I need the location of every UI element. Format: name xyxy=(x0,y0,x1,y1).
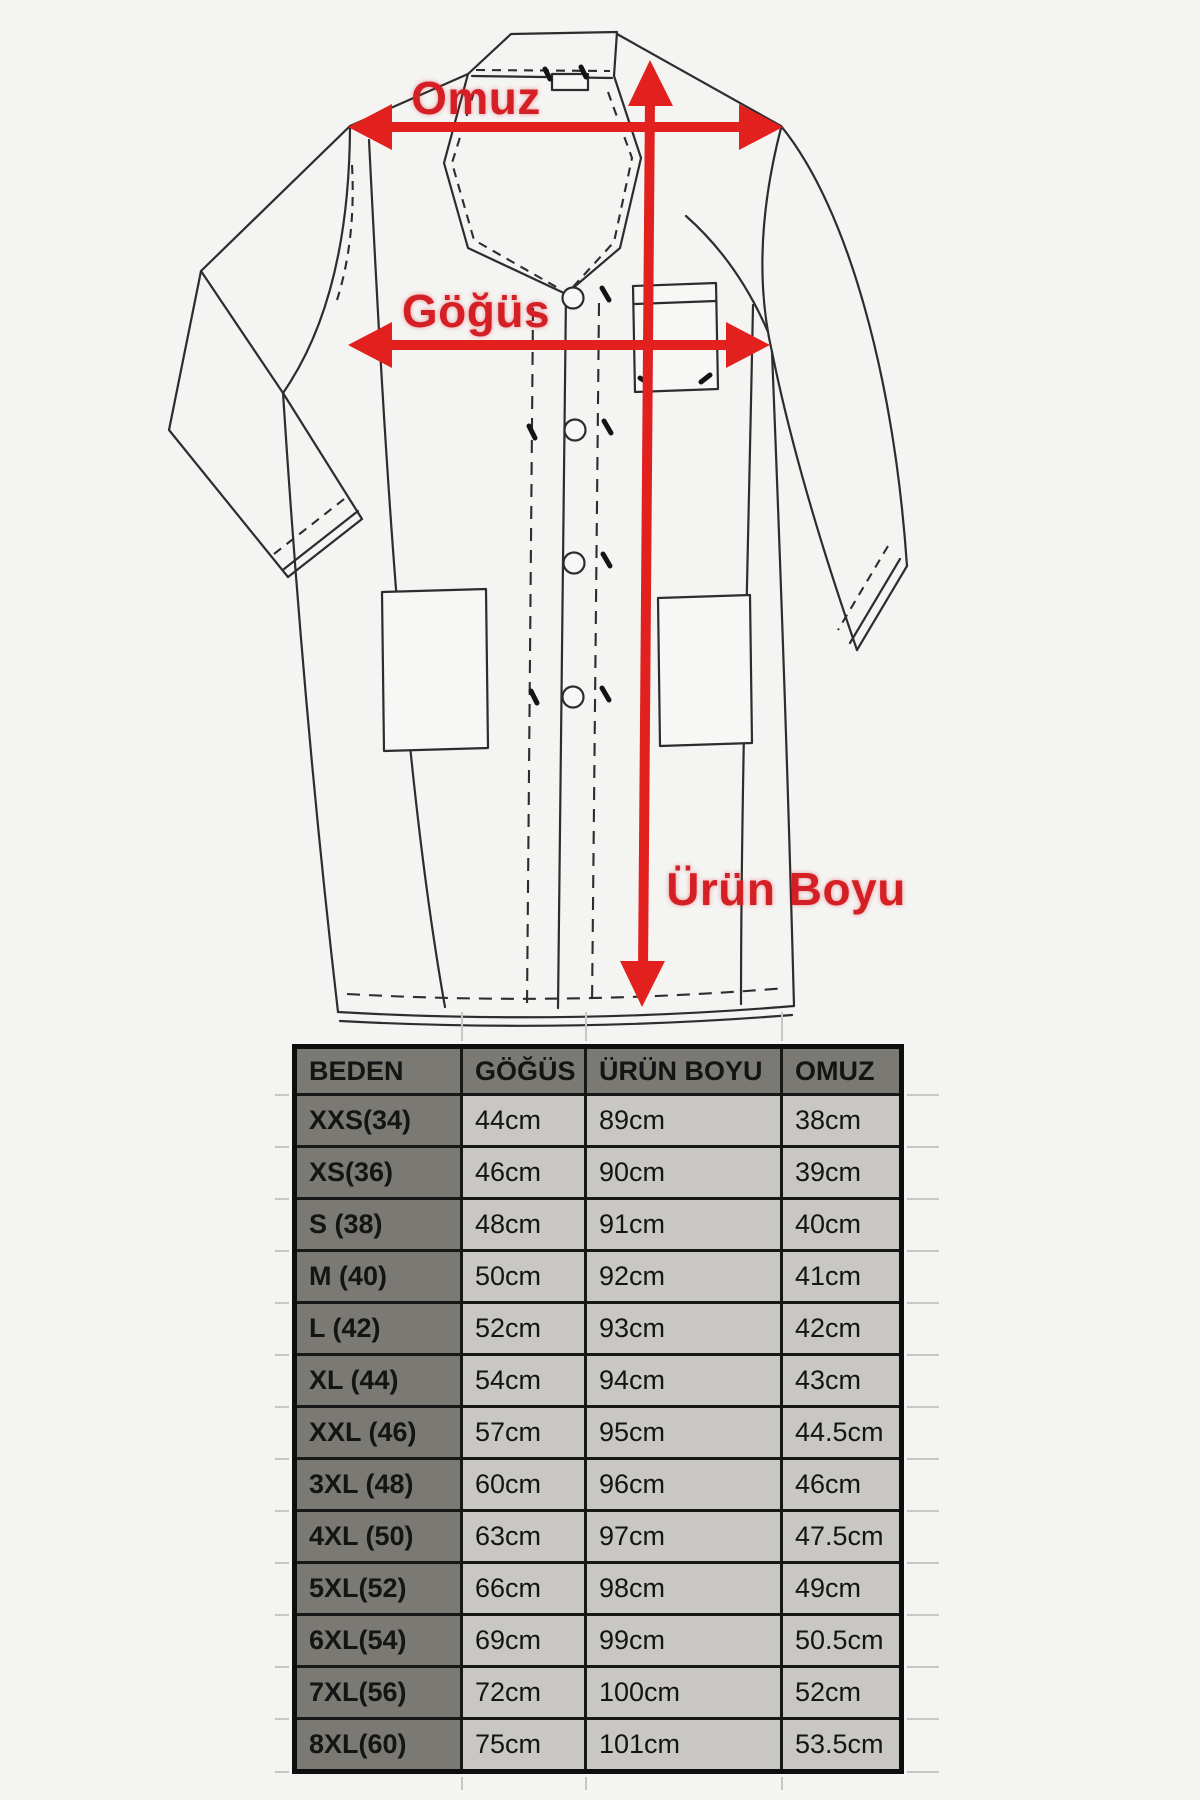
size-cell: 38cm xyxy=(782,1095,902,1147)
size-table-header-3: OMUZ xyxy=(782,1047,902,1095)
gridline-tick xyxy=(275,1510,289,1512)
gridline-tick xyxy=(907,1458,939,1460)
gridline-tick xyxy=(907,1718,939,1720)
gridline-tick xyxy=(907,1771,939,1773)
size-cell: 75cm xyxy=(462,1719,586,1772)
size-cell: 39cm xyxy=(782,1147,902,1199)
gridline-tick xyxy=(907,1562,939,1564)
size-cell: 101cm xyxy=(586,1719,782,1772)
length-arrow xyxy=(620,60,673,1007)
gridline-tick xyxy=(907,1146,939,1148)
front-placket xyxy=(527,294,599,1008)
size-cell: 72cm xyxy=(462,1667,586,1719)
size-cell: 53.5cm xyxy=(782,1719,902,1772)
gridline-tick xyxy=(907,1614,939,1616)
size-row-label: XXS(34) xyxy=(295,1095,462,1147)
gridline-tick xyxy=(907,1510,939,1512)
gridline-tick xyxy=(275,1250,289,1252)
size-row-label: M (40) xyxy=(295,1251,462,1303)
size-cell: 40cm xyxy=(782,1199,902,1251)
gridline-tick xyxy=(275,1771,289,1773)
size-cell: 50.5cm xyxy=(782,1615,902,1667)
gridline-tick xyxy=(781,1777,783,1790)
gridline-tick xyxy=(461,1777,463,1790)
size-cell: 94cm xyxy=(586,1355,782,1407)
size-row-label: 5XL(52) xyxy=(295,1563,462,1615)
size-table-row: 4XL (50)63cm97cm47.5cm xyxy=(295,1511,902,1563)
gridline-tick xyxy=(275,1094,289,1096)
size-cell: 63cm xyxy=(462,1511,586,1563)
size-cell: 50cm xyxy=(462,1251,586,1303)
size-cell: 47.5cm xyxy=(782,1511,902,1563)
size-row-label: 8XL(60) xyxy=(295,1719,462,1772)
gridline-tick xyxy=(907,1094,939,1096)
size-table-row: S (38)48cm91cm40cm xyxy=(295,1199,902,1251)
gridline-tick xyxy=(275,1718,289,1720)
size-row-label: XS(36) xyxy=(295,1147,462,1199)
shoulder-label: Omuz xyxy=(411,72,541,124)
size-cell: 66cm xyxy=(462,1563,586,1615)
gridline-tick xyxy=(275,1562,289,1564)
gridline-tick xyxy=(907,1250,939,1252)
size-cell: 97cm xyxy=(586,1511,782,1563)
size-table-row: 6XL(54)69cm99cm50.5cm xyxy=(295,1615,902,1667)
size-cell: 91cm xyxy=(586,1199,782,1251)
gridline-tick xyxy=(907,1666,939,1668)
size-row-label: XXL (46) xyxy=(295,1407,462,1459)
size-cell: 92cm xyxy=(586,1251,782,1303)
gridline-tick xyxy=(275,1146,289,1148)
size-table-row: 7XL(56)72cm100cm52cm xyxy=(295,1667,902,1719)
size-row-label: S (38) xyxy=(295,1199,462,1251)
size-cell: 57cm xyxy=(462,1407,586,1459)
size-cell: 96cm xyxy=(586,1459,782,1511)
size-cell: 95cm xyxy=(586,1407,782,1459)
size-cell: 100cm xyxy=(586,1667,782,1719)
gridline-tick xyxy=(907,1302,939,1304)
size-cell: 46cm xyxy=(782,1459,902,1511)
size-cell: 41cm xyxy=(782,1251,902,1303)
size-cell: 93cm xyxy=(586,1303,782,1355)
size-table: BEDENGÖĞÜSÜRÜN BOYUOMUZ XXS(34)44cm89cm3… xyxy=(292,1044,904,1774)
size-cell: 52cm xyxy=(782,1667,902,1719)
size-row-label: 3XL (48) xyxy=(295,1459,462,1511)
size-table-row: 8XL(60)75cm101cm53.5cm xyxy=(295,1719,902,1772)
labcoat-technical-drawing: Omuz Göğüs Ürün Boyu xyxy=(0,0,1200,1040)
size-cell: 46cm xyxy=(462,1147,586,1199)
size-table-row: L (42)52cm93cm42cm xyxy=(295,1303,902,1355)
size-table-row: XXL (46)57cm95cm44.5cm xyxy=(295,1407,902,1459)
hem-stitch xyxy=(347,988,786,999)
gridline-tick xyxy=(275,1666,289,1668)
size-cell: 48cm xyxy=(462,1199,586,1251)
right-pocket xyxy=(658,595,752,746)
size-row-label: 7XL(56) xyxy=(295,1667,462,1719)
gridline-tick xyxy=(275,1406,289,1408)
gridline-tick xyxy=(275,1302,289,1304)
hanger-loop xyxy=(552,74,588,90)
size-table-header-1: GÖĞÜS xyxy=(462,1047,586,1095)
gridline-tick xyxy=(907,1198,939,1200)
gridline-tick xyxy=(585,1012,587,1041)
size-cell: 43cm xyxy=(782,1355,902,1407)
right-sleeve xyxy=(762,126,907,650)
left-pocket xyxy=(382,589,488,751)
size-cell: 69cm xyxy=(462,1615,586,1667)
size-table-header-0: BEDEN xyxy=(295,1047,462,1095)
gridline-tick xyxy=(461,1012,463,1041)
size-table-header-row: BEDENGÖĞÜSÜRÜN BOYUOMUZ xyxy=(295,1047,902,1095)
size-row-label: 6XL(54) xyxy=(295,1615,462,1667)
size-table-row: XXS(34)44cm89cm38cm xyxy=(295,1095,902,1147)
chest-label: Göğüs xyxy=(402,285,550,337)
size-table-row: XS(36)46cm90cm39cm xyxy=(295,1147,902,1199)
size-cell: 42cm xyxy=(782,1303,902,1355)
length-label: Ürün Boyu xyxy=(666,863,906,915)
size-table-row: 3XL (48)60cm96cm46cm xyxy=(295,1459,902,1511)
gridline-tick xyxy=(275,1614,289,1616)
size-table-row: 5XL(52)66cm98cm49cm xyxy=(295,1563,902,1615)
size-cell: 44cm xyxy=(462,1095,586,1147)
gridline-tick xyxy=(907,1354,939,1356)
size-cell: 89cm xyxy=(586,1095,782,1147)
size-cell: 60cm xyxy=(462,1459,586,1511)
gridline-tick xyxy=(275,1458,289,1460)
size-cell: 98cm xyxy=(586,1563,782,1615)
size-chart-image: Omuz Göğüs Ürün Boyu BEDENGÖĞÜSÜRÜN BOYU… xyxy=(0,0,1200,1800)
gridline-tick xyxy=(275,1198,289,1200)
size-cell: 52cm xyxy=(462,1303,586,1355)
gridline-tick xyxy=(275,1354,289,1356)
size-row-label: L (42) xyxy=(295,1303,462,1355)
size-cell: 54cm xyxy=(462,1355,586,1407)
size-table-header-2: ÜRÜN BOYU xyxy=(586,1047,782,1095)
gridline-tick xyxy=(585,1777,587,1790)
gridline-tick xyxy=(907,1406,939,1408)
size-cell: 90cm xyxy=(586,1147,782,1199)
size-cell: 49cm xyxy=(782,1563,902,1615)
left-panel-seam xyxy=(369,140,445,1007)
left-sleeve xyxy=(169,126,362,577)
size-table-row: M (40)50cm92cm41cm xyxy=(295,1251,902,1303)
size-row-label: 4XL (50) xyxy=(295,1511,462,1563)
size-cell: 44.5cm xyxy=(782,1407,902,1459)
size-table-row: XL (44)54cm94cm43cm xyxy=(295,1355,902,1407)
size-row-label: XL (44) xyxy=(295,1355,462,1407)
size-cell: 99cm xyxy=(586,1615,782,1667)
gridline-tick xyxy=(781,1012,783,1041)
